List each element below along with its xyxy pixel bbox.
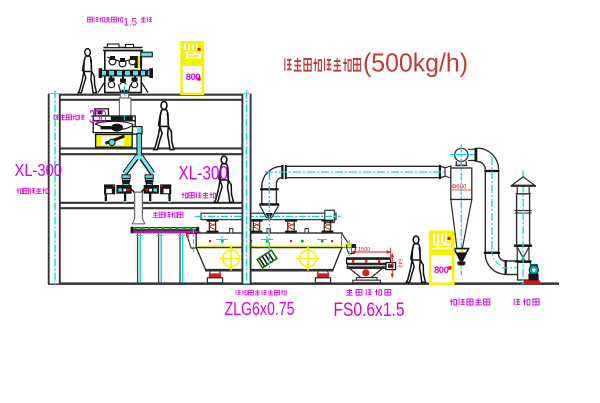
svg-text:XL-300: XL-300 <box>179 164 229 185</box>
svg-text:1.5: 1.5 <box>124 17 138 29</box>
svg-text:ZLG6x0.75: ZLG6x0.75 <box>225 299 295 319</box>
svg-text:(500kg/h): (500kg/h) <box>363 48 468 78</box>
svg-text:350: 350 <box>89 107 107 127</box>
svg-text:XL-300: XL-300 <box>15 160 63 180</box>
svg-text:FS0.6x1.5: FS0.6x1.5 <box>334 300 405 321</box>
svg-text:800: 800 <box>434 265 449 276</box>
svg-text:1500: 1500 <box>358 247 370 253</box>
svg-text:540: 540 <box>396 259 402 268</box>
svg-text:800: 800 <box>186 72 201 83</box>
